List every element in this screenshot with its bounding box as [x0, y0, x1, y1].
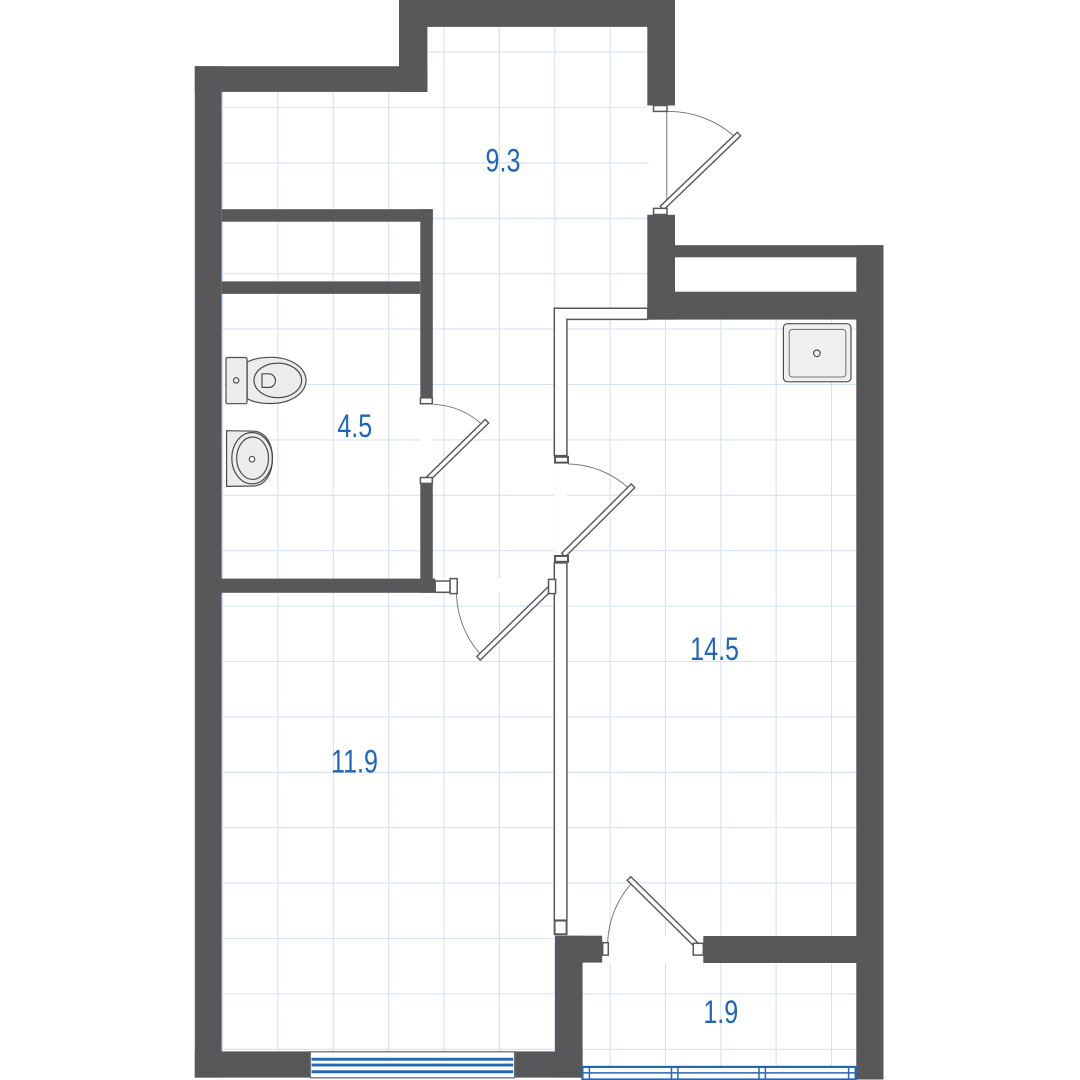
svg-text:1.9: 1.9 — [703, 995, 738, 1031]
svg-text:11.9: 11.9 — [331, 745, 378, 781]
svg-text:9.3: 9.3 — [486, 144, 521, 180]
svg-text:14.5: 14.5 — [690, 632, 739, 668]
svg-text:4.5: 4.5 — [337, 409, 372, 445]
